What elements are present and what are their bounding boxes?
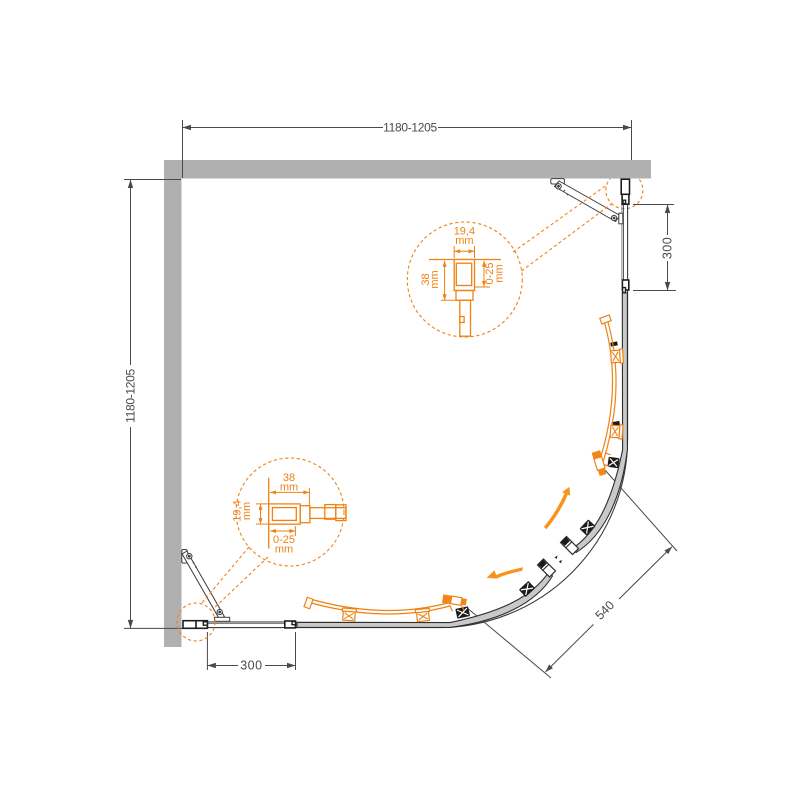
svg-text:mm: mm [241,502,253,520]
svg-text:mm: mm [455,235,473,247]
svg-text:300: 300 [240,659,262,673]
svg-text:mm: mm [280,482,298,494]
svg-text:mm: mm [275,544,293,556]
svg-text:mm: mm [429,270,441,288]
svg-text:300: 300 [661,237,675,259]
svg-text:mm: mm [493,264,505,282]
svg-text:1180-1205: 1180-1205 [383,121,437,135]
svg-text:1180-1205: 1180-1205 [123,368,137,422]
